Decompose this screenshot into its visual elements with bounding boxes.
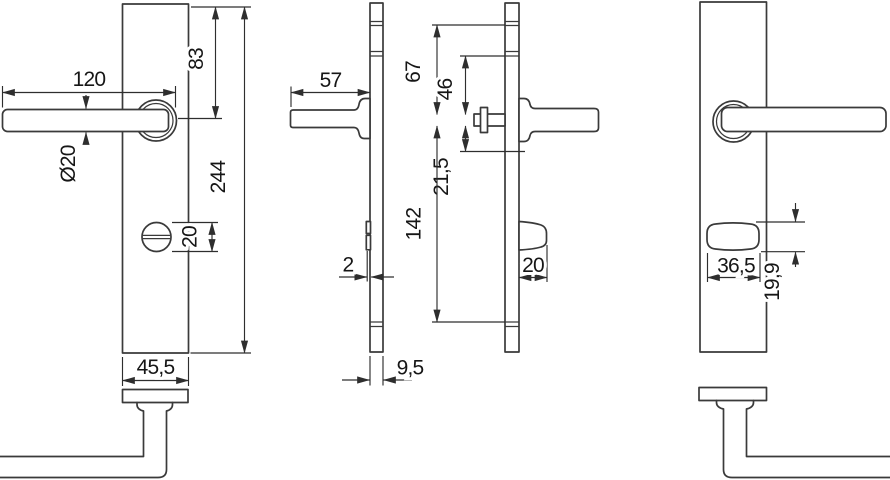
dim-handle-diameter: Ø20 — [57, 95, 86, 183]
backplate-front — [123, 4, 189, 353]
backplate-profile-ext — [505, 3, 519, 352]
view-profile-interior — [291, 3, 384, 352]
dim-cylinder-cover-height-label: 19,9 — [761, 263, 784, 301]
dim-collar-offset-label: 2 — [343, 254, 354, 277]
dim-top-to-handle-axis-label: 83 — [185, 48, 208, 70]
dim-groove-to-axis: 46 — [434, 56, 505, 115]
handle-neck-left — [0, 403, 144, 457]
lever-handle-profile-ext — [519, 99, 599, 142]
dim-plate-depth-label: 9,5 — [397, 357, 424, 380]
view-front-interior — [3, 4, 189, 353]
dim-cylinder-cover-width: 36,5 — [708, 253, 761, 282]
dim-groove-to-axis-label: 46 — [434, 79, 457, 101]
dim-axis-to-line: 21,5 — [430, 126, 525, 196]
dim-axis-to-bottom-groove-label: 142 — [403, 208, 426, 241]
dim-plate-width: 45,5 — [123, 356, 189, 386]
dim-axis-to-bottom-groove: 142 — [403, 126, 506, 322]
backplate-profile — [370, 3, 383, 352]
turn-collar-lower — [366, 235, 370, 250]
plate-groove-lines — [370, 22, 383, 327]
view-front-exterior — [700, 2, 886, 352]
backplate-bottom-edge-ext — [699, 388, 767, 401]
spindle-washer — [481, 108, 488, 133]
dim-plate-width-label: 45,5 — [137, 356, 175, 379]
dim-handle-length-label: 120 — [73, 68, 106, 91]
thumbturn-knob — [142, 223, 171, 252]
backplate-front-ext — [700, 2, 767, 352]
turn-collar-upper — [366, 222, 370, 234]
dim-turn-knob-diameter: 20 — [172, 223, 218, 252]
dim-handle-diameter-label: Ø20 — [57, 145, 80, 182]
spindle-bar — [474, 114, 505, 126]
lever-handle-grip-ext — [722, 108, 887, 132]
door-fitting-drawing: 120 Ø20 83 244 20 45,5 — [0, 0, 890, 480]
plate-groove-lines-ext — [505, 22, 519, 327]
dim-axis-to-line-label: 21,5 — [430, 158, 453, 196]
view-bottom-exterior — [699, 388, 890, 478]
dim-top-to-axis-label: 67 — [402, 61, 425, 83]
backplate-bottom-edge — [123, 390, 189, 403]
dim-cylinder-cover-height: 19,9 — [756, 203, 805, 301]
technical-drawing-page: 120 Ø20 83 244 20 45,5 — [0, 0, 890, 480]
turn-knob-profile — [519, 222, 547, 251]
dim-plate-depth: 9,5 — [342, 356, 424, 386]
view-profile-exterior — [474, 3, 599, 352]
dim-collar-offset: 2 — [339, 251, 394, 282]
view-bottom-interior — [0, 390, 188, 478]
dim-handle-projection-label: 57 — [320, 69, 342, 92]
dim-knob-projection-label: 20 — [522, 254, 544, 277]
dim-plate-height-label: 244 — [207, 160, 230, 194]
lever-handle-profile — [291, 99, 371, 139]
handle-neck-left-ext — [717, 401, 890, 478]
cylinder-cover — [707, 223, 759, 250]
handle-neck-right — [0, 403, 173, 478]
dim-turn-knob-diameter-label: 20 — [179, 226, 202, 248]
lever-handle-grip — [3, 110, 169, 132]
dim-handle-projection: 57 — [291, 69, 370, 107]
handle-neck-right-ext — [747, 401, 890, 457]
dim-cylinder-cover-width-label: 36,5 — [717, 255, 755, 278]
